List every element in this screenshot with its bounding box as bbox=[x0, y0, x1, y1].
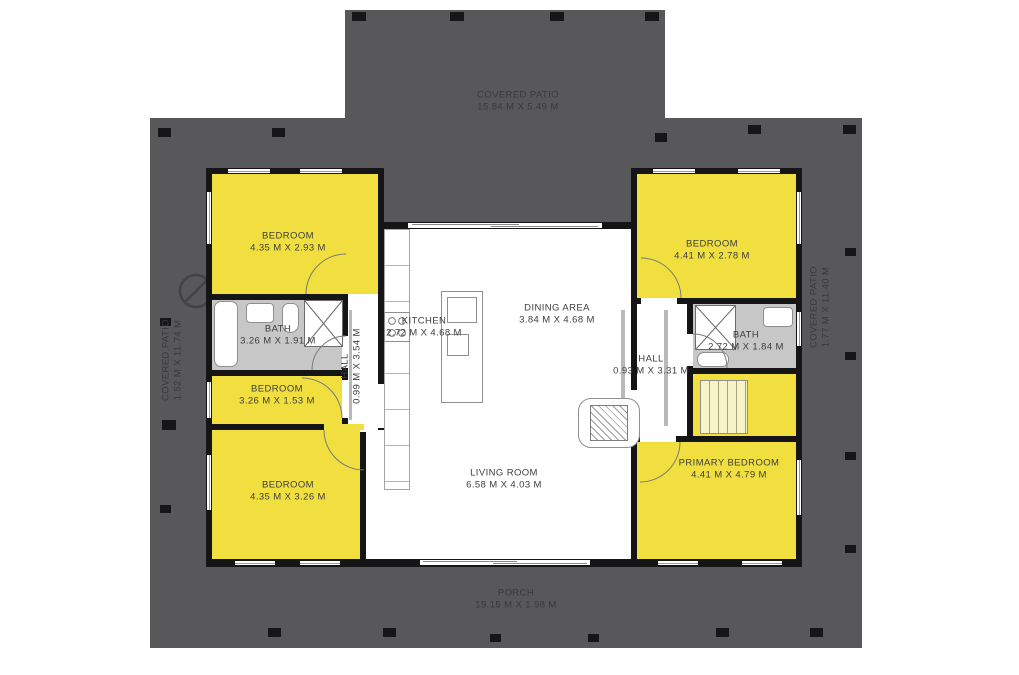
room-dims: 0.93 M X 3.31 M bbox=[613, 366, 689, 378]
label-covered-patio-right: COVERED PATIO 1.77 M X 11.40 M bbox=[809, 266, 834, 348]
room-name: COVERED PATIO bbox=[477, 90, 559, 102]
label-kitchen: KITCHEN 2.72 M X 4.68 M bbox=[386, 316, 462, 341]
room-name: KITCHEN bbox=[386, 316, 462, 328]
room-name: PRIMARY BEDROOM bbox=[679, 458, 780, 470]
label-bath-right: BATH 2.72 M X 1.84 M bbox=[708, 330, 784, 355]
room-name: LIVING ROOM bbox=[466, 468, 542, 480]
room-name: HALL bbox=[613, 354, 689, 366]
label-covered-patio-top: COVERED PATIO 15.84 M X 5.49 M bbox=[477, 90, 559, 115]
room-name: BATH bbox=[240, 324, 316, 336]
room-name: BATH bbox=[708, 330, 784, 342]
label-bath-left: BATH 3.26 M X 1.91 M bbox=[240, 324, 316, 349]
room-name: BEDROOM bbox=[239, 384, 315, 396]
room-name: PORCH bbox=[475, 588, 556, 600]
label-primary-bedroom: PRIMARY BEDROOM 4.41 M X 4.79 M bbox=[679, 458, 780, 483]
room-dims: 4.41 M X 2.78 M bbox=[674, 251, 750, 263]
label-living-room: LIVING ROOM 6.58 M X 4.03 M bbox=[466, 468, 542, 493]
room-dims: 0.99 M X 3.54 M bbox=[352, 328, 364, 404]
room-dims: 3.26 M X 1.91 M bbox=[240, 336, 316, 348]
label-dining-area: DINING AREA 3.84 M X 4.68 M bbox=[519, 303, 595, 328]
label-bedroom-bottom-left: BEDROOM 4.35 M X 3.26 M bbox=[250, 480, 326, 505]
room-dims: 4.41 M X 4.79 M bbox=[679, 470, 780, 482]
room-name: BEDROOM bbox=[250, 231, 326, 243]
label-porch: PORCH 19.15 M X 1.98 M bbox=[475, 588, 556, 613]
label-bedroom-top-left: BEDROOM 4.35 M X 2.93 M bbox=[250, 231, 326, 256]
room-dims: 15.84 M X 5.49 M bbox=[477, 102, 559, 114]
room-name: DINING AREA bbox=[519, 303, 595, 315]
room-dims: 1.77 M X 11.40 M bbox=[821, 266, 833, 348]
label-covered-patio-left: COVERED PATIO 1.52 M X 11.74 M bbox=[161, 319, 186, 401]
room-name: BEDROOM bbox=[674, 239, 750, 251]
room-dims: 2.72 M X 4.68 M bbox=[386, 328, 462, 340]
label-hall-left: HALL 0.99 M X 3.54 M bbox=[340, 328, 365, 404]
room-dims: 1.52 M X 11.74 M bbox=[173, 319, 185, 401]
room-dims: 3.84 M X 4.68 M bbox=[519, 315, 595, 327]
floor-plan: COVERED PATIO 15.84 M X 5.49 M COVERED P… bbox=[0, 0, 1019, 675]
room-name: BEDROOM bbox=[250, 480, 326, 492]
label-hall-right: HALL 0.93 M X 3.31 M bbox=[613, 354, 689, 379]
room-dims: 6.58 M X 4.03 M bbox=[466, 480, 542, 492]
room-dims: 4.35 M X 2.93 M bbox=[250, 243, 326, 255]
label-bedroom-middle-left: BEDROOM 3.26 M X 1.53 M bbox=[239, 384, 315, 409]
room-dims: 2.72 M X 1.84 M bbox=[708, 342, 784, 354]
room-dims: 3.26 M X 1.53 M bbox=[239, 396, 315, 408]
room-dims: 19.15 M X 1.98 M bbox=[475, 600, 556, 612]
room-name: COVERED PATIO bbox=[161, 319, 173, 401]
room-name: COVERED PATIO bbox=[809, 266, 821, 348]
room-name: HALL bbox=[340, 328, 352, 404]
room-dims: 4.35 M X 3.26 M bbox=[250, 492, 326, 504]
label-bedroom-top-right: BEDROOM 4.41 M X 2.78 M bbox=[674, 239, 750, 264]
